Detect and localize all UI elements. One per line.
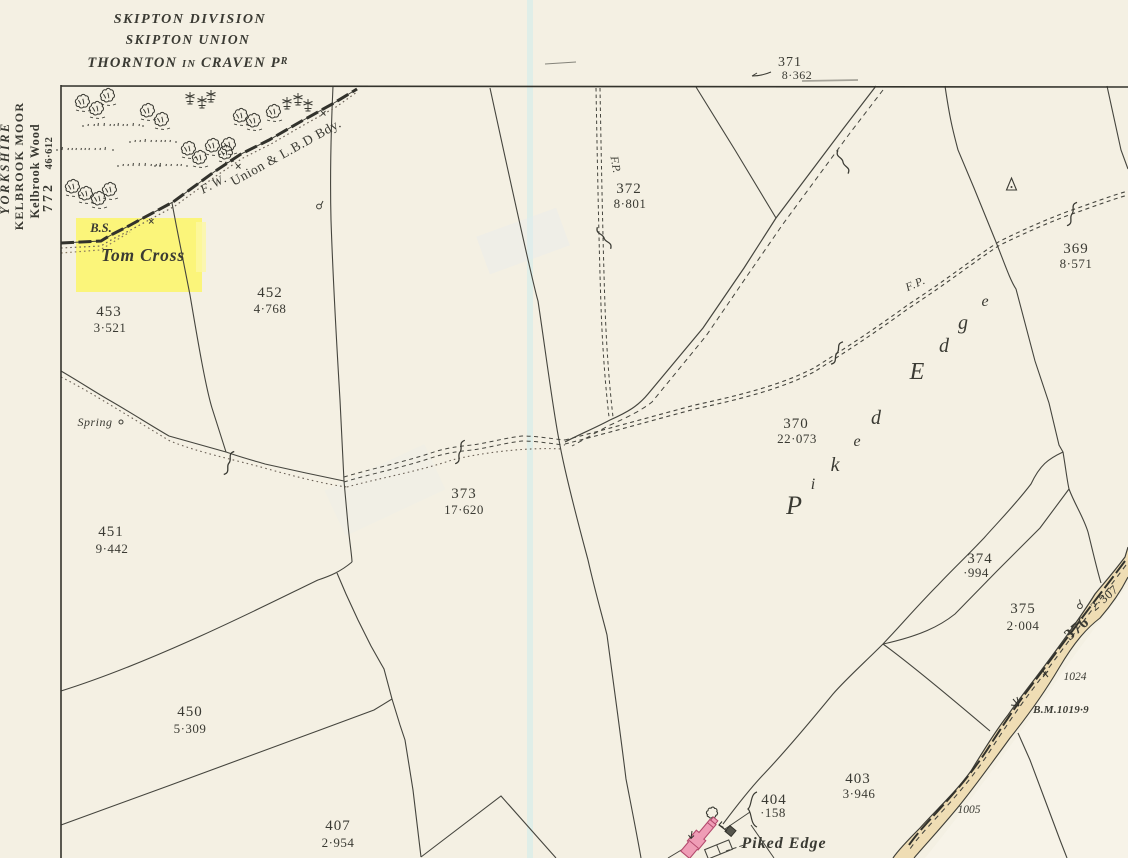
svg-text:Piked Edge: Piked Edge bbox=[740, 835, 826, 852]
svg-text:Spring: Spring bbox=[77, 415, 112, 429]
svg-text:373: 373 bbox=[451, 486, 477, 502]
svg-text:375: 375 bbox=[1010, 601, 1036, 617]
svg-text:g: g bbox=[958, 312, 968, 334]
svg-text:370: 370 bbox=[783, 416, 809, 432]
svg-text:5·309: 5·309 bbox=[174, 721, 207, 736]
svg-text:1005: 1005 bbox=[958, 804, 981, 816]
svg-text:453: 453 bbox=[96, 304, 122, 320]
svg-text:e: e bbox=[981, 293, 988, 310]
svg-text:2·004: 2·004 bbox=[1007, 618, 1040, 633]
svg-text:YORKSHIRE: YORKSHIRE bbox=[0, 121, 12, 214]
svg-text:1024: 1024 bbox=[1064, 671, 1087, 683]
svg-text:P: P bbox=[785, 491, 802, 520]
svg-text:d: d bbox=[939, 335, 950, 357]
svg-text:372: 372 bbox=[616, 181, 642, 197]
svg-text:407: 407 bbox=[325, 818, 351, 834]
svg-text:772: 772 bbox=[41, 182, 56, 212]
svg-text:2·954: 2·954 bbox=[322, 835, 355, 850]
svg-text:9·442: 9·442 bbox=[96, 541, 129, 556]
svg-text:Kelbrook Wood: Kelbrook Wood bbox=[28, 123, 42, 218]
svg-text:17·620: 17·620 bbox=[444, 502, 484, 517]
svg-text:e: e bbox=[853, 433, 860, 450]
svg-text:d: d bbox=[871, 407, 882, 429]
svg-text:46·612: 46·612 bbox=[44, 137, 55, 170]
svg-text:B.M.1019·9: B.M.1019·9 bbox=[1032, 704, 1089, 716]
svg-text:8·571: 8·571 bbox=[1060, 256, 1093, 271]
svg-text:451: 451 bbox=[98, 524, 124, 540]
svg-text:Tom Cross: Tom Cross bbox=[101, 245, 185, 265]
svg-text:·994: ·994 bbox=[963, 565, 989, 580]
svg-text:KELBROOK MOOR: KELBROOK MOOR bbox=[12, 102, 26, 231]
svg-text:8·801: 8·801 bbox=[614, 196, 647, 211]
svg-text:3·521: 3·521 bbox=[94, 320, 127, 335]
svg-text:SKIPTON DIVISION: SKIPTON DIVISION bbox=[114, 12, 267, 27]
svg-text:452: 452 bbox=[257, 285, 283, 301]
svg-text:B.S.: B.S. bbox=[89, 221, 112, 235]
svg-text:k: k bbox=[831, 454, 841, 476]
svg-text:i: i bbox=[811, 476, 815, 493]
svg-text:4·768: 4·768 bbox=[254, 301, 287, 316]
svg-text:3·946: 3·946 bbox=[843, 786, 876, 801]
svg-text:369: 369 bbox=[1063, 241, 1089, 257]
svg-text:450: 450 bbox=[177, 704, 203, 720]
svg-text:403: 403 bbox=[845, 771, 871, 787]
svg-text:22·073: 22·073 bbox=[777, 431, 817, 446]
svg-text:SKIPTON UNION: SKIPTON UNION bbox=[126, 32, 251, 47]
svg-text:·158: ·158 bbox=[760, 805, 786, 820]
svg-text:8·362: 8·362 bbox=[782, 68, 813, 82]
svg-text:E: E bbox=[909, 359, 925, 385]
